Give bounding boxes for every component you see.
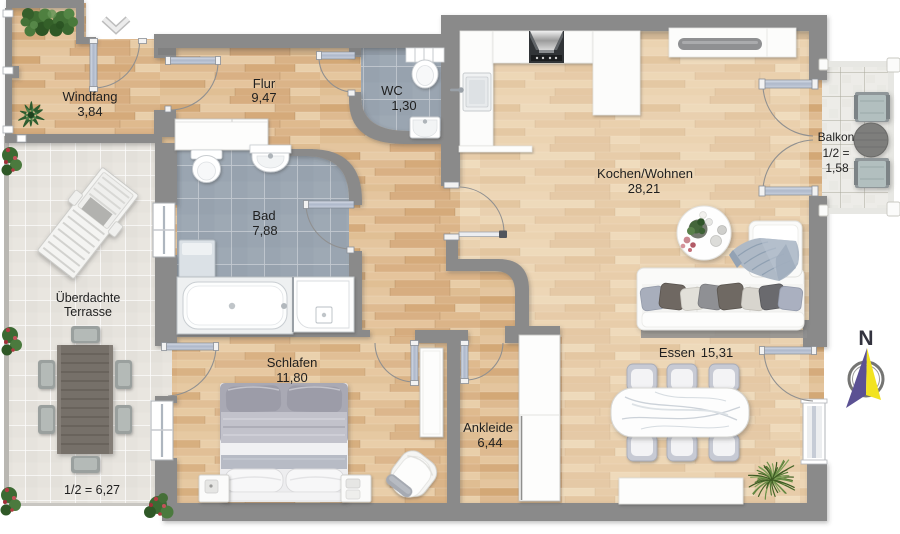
svg-text:N: N — [858, 327, 873, 350]
svg-text:1,58: 1,58 — [825, 161, 849, 175]
svg-text:Schlafen: Schlafen — [267, 355, 318, 370]
svg-text:1/2 = 6,27: 1/2 = 6,27 — [64, 483, 120, 497]
svg-text:11,80: 11,80 — [276, 370, 308, 385]
svg-text:Windfang: Windfang — [63, 89, 118, 104]
svg-text:Ankleide: Ankleide — [463, 420, 513, 435]
svg-text:Bad: Bad — [252, 208, 275, 223]
svg-text:Flur: Flur — [253, 76, 276, 91]
svg-text:9,47: 9,47 — [251, 90, 276, 105]
svg-text:Kochen/Wohnen: Kochen/Wohnen — [597, 166, 693, 181]
svg-text:3,84: 3,84 — [77, 104, 102, 119]
svg-text:Überdachte: Überdachte — [56, 291, 121, 305]
svg-text:28,21: 28,21 — [628, 181, 661, 196]
svg-text:15,31: 15,31 — [701, 345, 734, 360]
svg-text:Terrasse: Terrasse — [64, 305, 112, 319]
svg-text:1/2 =: 1/2 = — [822, 146, 849, 160]
svg-text:6,44: 6,44 — [477, 435, 502, 450]
svg-text:7,88: 7,88 — [252, 223, 277, 238]
svg-text:1,30: 1,30 — [391, 98, 416, 113]
svg-text:Essen: Essen — [659, 345, 695, 360]
svg-text:Balkon: Balkon — [818, 130, 855, 144]
svg-text:WC: WC — [381, 83, 403, 98]
